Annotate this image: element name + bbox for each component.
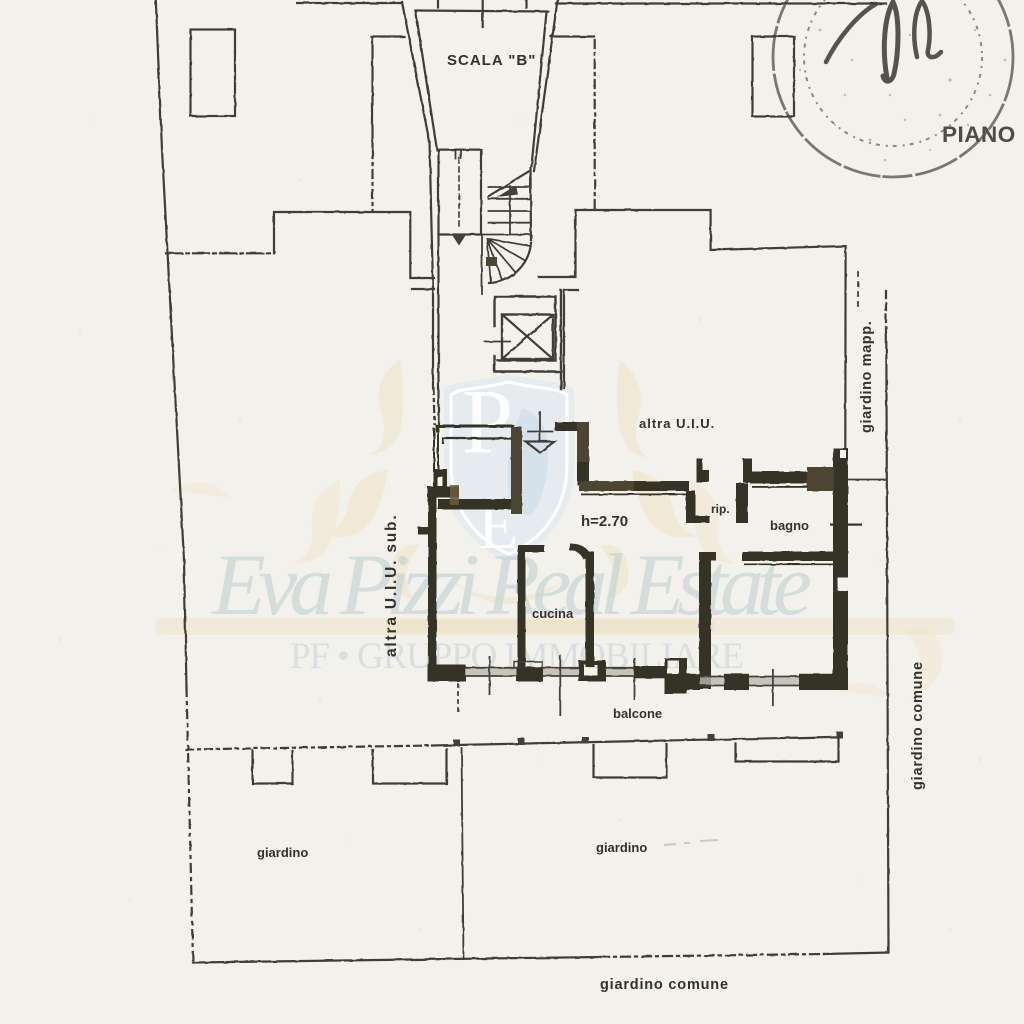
svg-text:balcone: balcone bbox=[613, 706, 662, 721]
svg-text:rip.: rip. bbox=[711, 502, 730, 516]
svg-text:giardino comune: giardino comune bbox=[910, 661, 926, 790]
svg-text:bagno: bagno bbox=[770, 518, 809, 533]
svg-text:P: P bbox=[462, 370, 513, 472]
svg-text:giardino mapp.: giardino mapp. bbox=[859, 321, 875, 433]
svg-text:altra U.I.U.: altra U.I.U. bbox=[639, 416, 715, 431]
svg-text:h=2.70: h=2.70 bbox=[581, 513, 628, 530]
svg-text:PIANO: PIANO bbox=[942, 122, 1016, 147]
svg-text:giardino comune: giardino comune bbox=[600, 977, 729, 993]
svg-text:cucina: cucina bbox=[532, 606, 574, 621]
svg-text:giardino: giardino bbox=[257, 845, 308, 860]
svg-text:giardino: giardino bbox=[596, 840, 647, 855]
svg-text:SCALA "B": SCALA "B" bbox=[447, 52, 536, 69]
svg-text:Eva Pizzi Real Estate: Eva Pizzi Real Estate bbox=[210, 537, 812, 634]
svg-text:altra U.I.U. sub.: altra U.I.U. sub. bbox=[383, 514, 400, 657]
